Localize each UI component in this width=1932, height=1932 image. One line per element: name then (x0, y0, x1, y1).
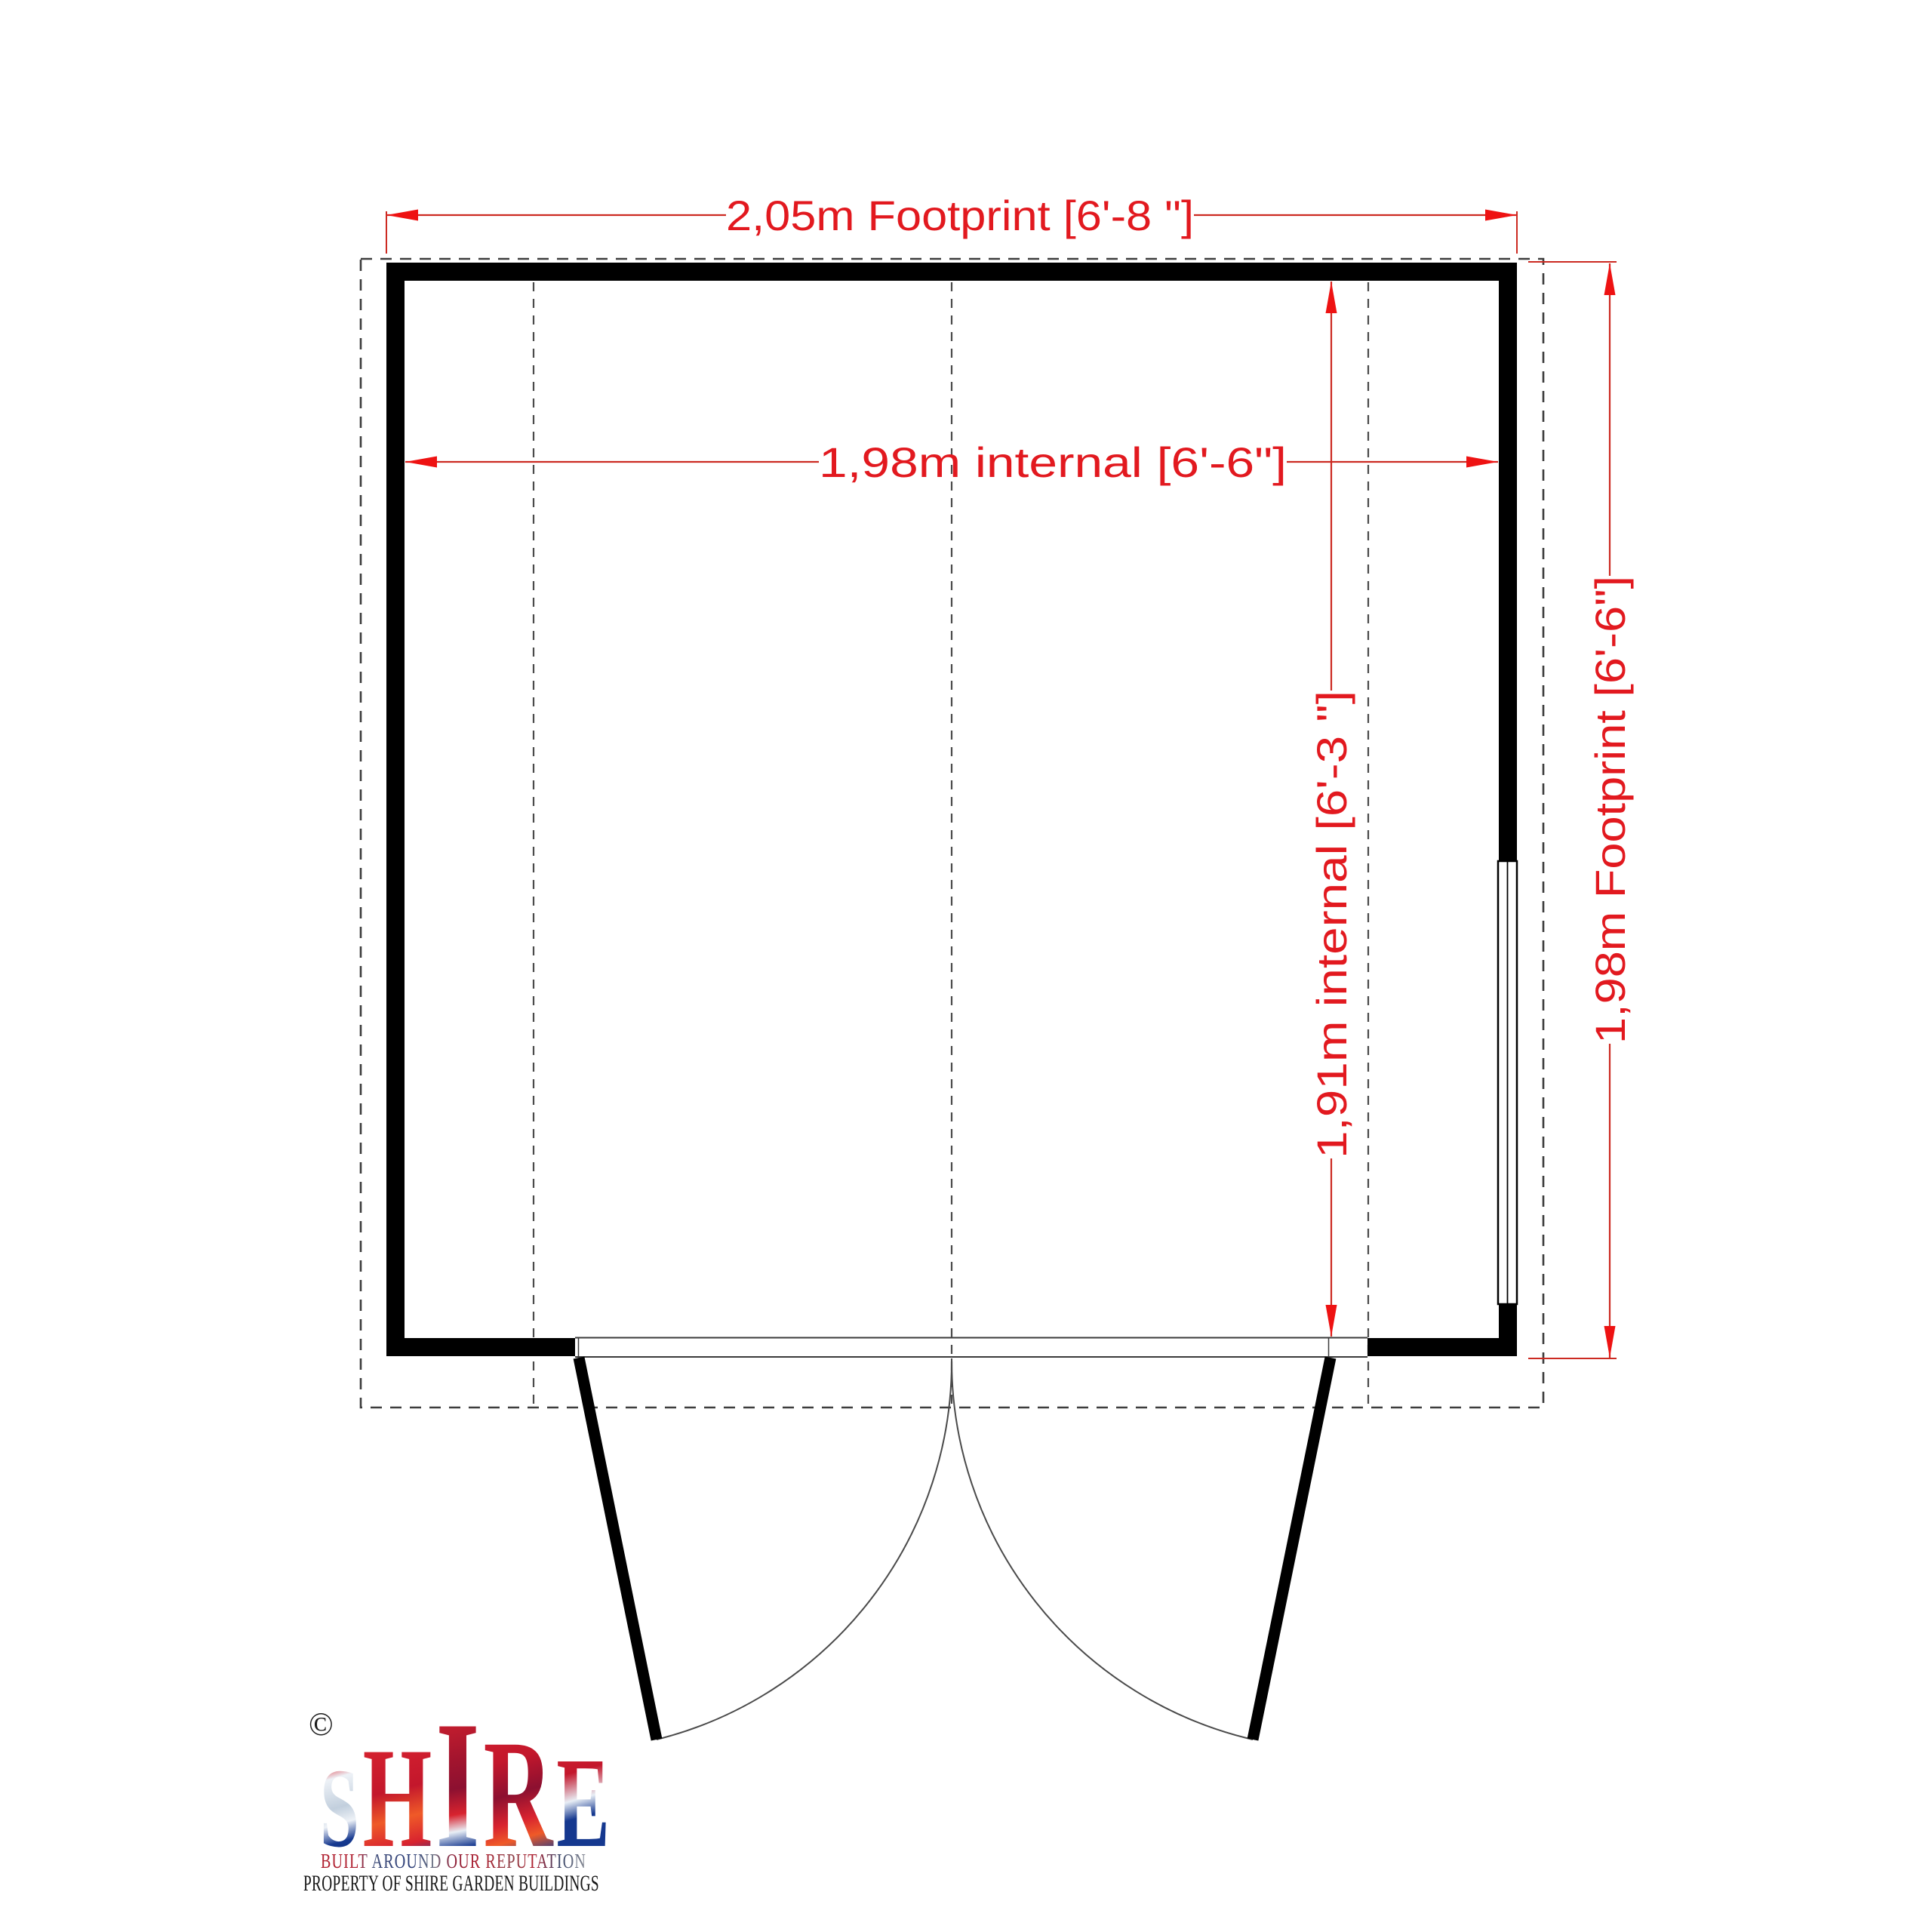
door-swing-arc-left (657, 1358, 952, 1740)
dim-width-internal: 1,98m internal [6'-6"] (405, 438, 1498, 486)
shire-logo: © SHIRE BUILT AROUND OUR REPUTATION PROP… (303, 1684, 610, 1896)
door-swing-arc-right (952, 1358, 1253, 1740)
wall-left (386, 263, 405, 1356)
dim-depth-internal: 1,91m internal [6'-3 "] (1308, 281, 1355, 1337)
logo-property-line: PROPERTY OF SHIRE GARDEN BUILDINGS (303, 1871, 599, 1896)
wall-bottom-right (1367, 1338, 1517, 1356)
dim-label-depth-footprint: 1,98m Footprint [6'-6"] (1586, 576, 1634, 1044)
dim-label-width-footprint: 2,05m Footprint [6'-8 "] (726, 192, 1194, 239)
arrowhead-left (405, 457, 437, 468)
floor-plan-page: 2,05m Footprint [6'-8 "] 1,98m internal … (0, 0, 1932, 1932)
wall-top (386, 263, 1517, 281)
floor-plan-drawing: 2,05m Footprint [6'-8 "] 1,98m internal … (0, 0, 1932, 1932)
arrowhead-right (1466, 457, 1498, 468)
logo-tagline: BUILT AROUND OUR REPUTATION (321, 1850, 586, 1872)
door-threshold (575, 1337, 1367, 1358)
door-leaf-right (1253, 1358, 1331, 1740)
door-leaf-left (579, 1358, 657, 1740)
dim-width-footprint: 2,05m Footprint [6'-8 "] (386, 192, 1517, 254)
arrowhead-down (1604, 1326, 1616, 1358)
wall-right-upper (1499, 263, 1517, 861)
arrowhead-right (1485, 210, 1517, 221)
window (1498, 861, 1517, 1304)
dim-label-depth-internal: 1,91m internal [6'-3 "] (1308, 691, 1355, 1158)
arrowhead-up (1326, 281, 1337, 313)
dim-label-width-internal: 1,98m internal [6'-6"] (819, 438, 1287, 486)
arrowhead-left (386, 210, 418, 221)
threshold-band (575, 1337, 1367, 1358)
wall-bottom-left (386, 1338, 575, 1356)
arrowhead-down (1326, 1305, 1337, 1337)
copyright-symbol: © (309, 1707, 334, 1743)
arrowhead-up (1604, 263, 1616, 295)
